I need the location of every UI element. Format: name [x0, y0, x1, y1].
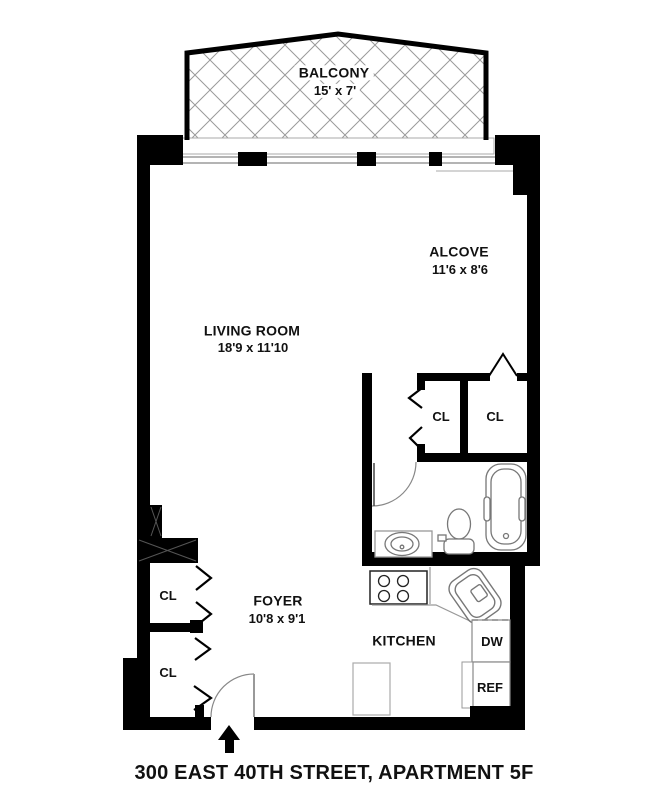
wall-right-step — [513, 160, 528, 195]
entry-door-arc — [211, 674, 254, 717]
bathtub-handle-right — [519, 497, 525, 521]
wall-right-upper — [527, 135, 540, 566]
wall-closet-divider — [460, 373, 468, 461]
foyer-label: FOYER — [253, 593, 302, 608]
bathroom-fixtures — [375, 464, 526, 557]
wall-kitchen-corner — [470, 706, 523, 730]
closet-label-foyer-bottom: CL — [159, 666, 176, 680]
toilet-bowl — [448, 509, 471, 539]
closet-label-mid-right: CL — [486, 410, 503, 424]
wall-left-lower — [137, 563, 150, 658]
wall-closet-top-stub — [517, 373, 528, 381]
wall-right-lower — [510, 552, 525, 730]
refrigerator-side-panel — [462, 662, 473, 708]
floor-plan-drawing — [0, 0, 668, 800]
toilet-flush-button — [438, 535, 446, 541]
bathroom-door-arc — [372, 462, 416, 506]
closet-label-foyer-top: CL — [159, 589, 176, 603]
counter-edge — [372, 605, 472, 622]
alcove-dimensions: 11'6 x 8'6 — [432, 263, 488, 277]
alcove-label: ALCOVE — [429, 244, 489, 259]
toilet-tank — [444, 539, 474, 554]
bathroom-sink-drain — [400, 545, 404, 549]
wall-living-divider — [362, 373, 372, 566]
wall-left-bottom-corner — [123, 658, 150, 720]
balcony-dimensions: 15' x 7' — [310, 84, 360, 98]
window-pier — [429, 152, 442, 166]
bathtub-drain — [504, 534, 509, 539]
balcony-floor-slab — [181, 138, 494, 154]
living-room-label: LIVING ROOM — [204, 323, 300, 338]
window-pier — [357, 152, 376, 166]
entrance-arrow-icon — [218, 725, 240, 753]
kitchen-label: KITCHEN — [372, 633, 436, 648]
closet-double-door — [489, 354, 517, 376]
window-band — [183, 157, 516, 171]
floor-plan: BALCONY 15' x 7' ALCOVE 11'6 x 8'6 LIVIN… — [0, 0, 668, 800]
dishwasher-label: DW — [481, 635, 503, 649]
wall-bottom-left — [123, 717, 211, 730]
wall-left-upper — [137, 135, 150, 563]
bathtub-basin — [491, 469, 521, 544]
kitchen-sink — [445, 565, 505, 628]
refrigerator-label: REF — [477, 681, 503, 695]
window-pier — [238, 152, 267, 166]
foyer-dimensions: 10'8 x 9'1 — [249, 612, 306, 626]
closet-label-mid-left: CL — [432, 410, 449, 424]
balcony-label: BALCONY — [295, 65, 374, 80]
living-room-dimensions: 18'9 x 11'10 — [218, 341, 289, 355]
kitchen-cabinet — [353, 663, 390, 715]
wall-foyer-closet-divider — [150, 623, 191, 632]
wall-closet-top — [417, 373, 490, 381]
bathtub-handle-left — [484, 497, 490, 521]
wall-bathroom-top — [417, 453, 540, 462]
floor-plan-title: 300 EAST 40TH STREET, APARTMENT 5F — [134, 762, 533, 784]
